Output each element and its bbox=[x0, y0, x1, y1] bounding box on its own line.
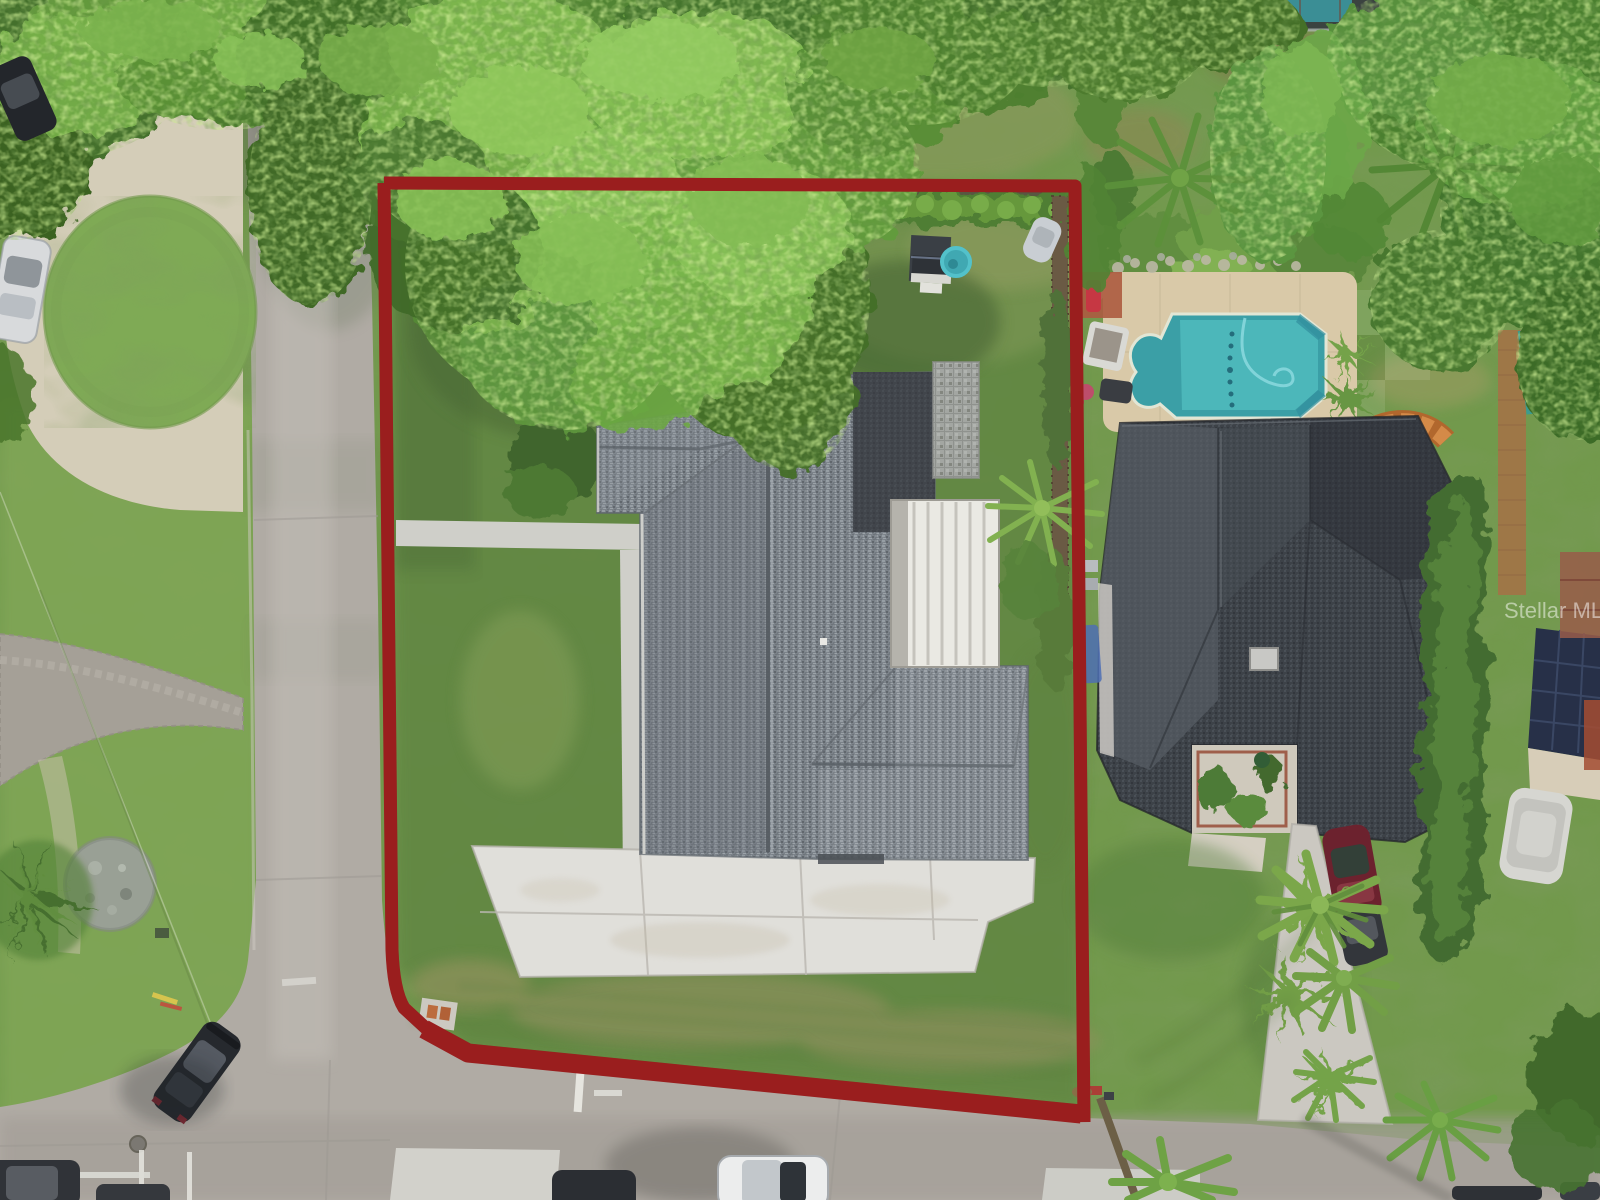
svg-text:Stellar MLS: Stellar MLS bbox=[1504, 598, 1600, 623]
